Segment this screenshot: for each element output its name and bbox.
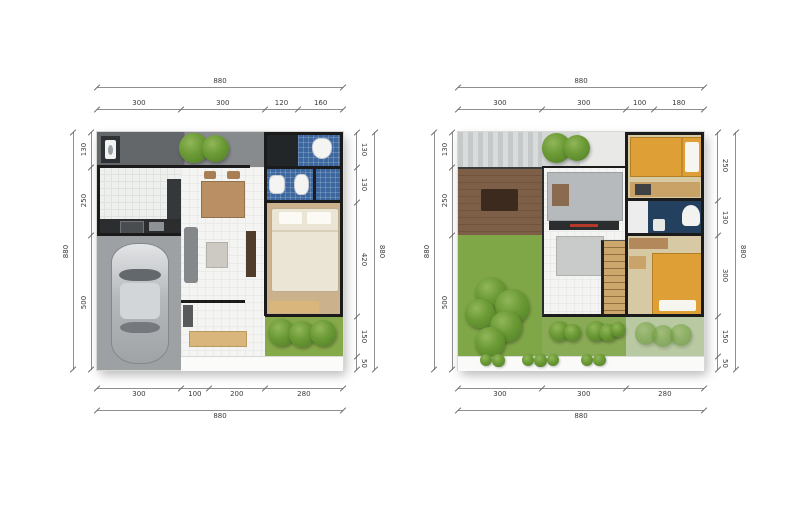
upper-hall xyxy=(626,200,648,235)
dim-segment: 120 xyxy=(265,96,299,110)
wall xyxy=(542,314,704,317)
dining-table xyxy=(201,181,245,218)
dim-segment: 300 xyxy=(97,96,181,110)
wall xyxy=(97,233,181,236)
ground-floor-plan: 880 300 300 120 160 880 130 250 500 130 … xyxy=(97,132,343,370)
dim-rail-left-total: 880 xyxy=(60,132,74,370)
bathroom-2 xyxy=(265,167,343,202)
dim-label: 250 xyxy=(81,194,88,207)
tv-cabinet xyxy=(246,231,256,277)
garage xyxy=(97,235,181,370)
dim-rail-bottom-segments: 300 300 280 xyxy=(458,388,704,402)
walkway xyxy=(181,356,343,371)
dim-segment: 160 xyxy=(298,96,343,110)
dim-segment: 150 xyxy=(717,316,731,357)
dim-segment: 300 xyxy=(181,96,265,110)
dim-rail-top-segments: 300 300 100 180 xyxy=(458,96,704,110)
side-cabinet xyxy=(629,256,646,269)
wall xyxy=(701,132,704,316)
bush-icon xyxy=(564,135,590,161)
dim-label: 250 xyxy=(442,194,449,207)
blanket-fold xyxy=(681,138,683,176)
stairs xyxy=(601,240,625,314)
wall xyxy=(97,165,250,168)
bush-icon xyxy=(202,135,229,162)
floorplan-canvas: 880 300 300 120 160 880 130 250 500 130 … xyxy=(0,0,804,505)
dim-label: 50 xyxy=(721,359,728,368)
wall xyxy=(265,314,343,317)
dim-segment: 880 xyxy=(421,132,435,370)
dim-label: 300 xyxy=(132,391,145,398)
bedroom-1 xyxy=(626,132,704,200)
bathroom xyxy=(648,200,704,235)
pillow xyxy=(685,142,699,172)
pillow xyxy=(279,212,303,223)
dim-label: 160 xyxy=(314,100,327,107)
dim-segment: 500 xyxy=(78,235,92,370)
wall xyxy=(542,166,626,168)
dim-segment: 50 xyxy=(717,356,731,370)
dim-label: 130 xyxy=(360,143,367,156)
dim-rail-right-segments: 250 130 300 150 50 xyxy=(717,132,731,370)
dim-label: 880 xyxy=(574,413,587,420)
toilet-icon xyxy=(312,138,332,159)
bush-icon xyxy=(564,324,581,341)
dim-rail-left-segments: 130 250 500 xyxy=(439,132,453,370)
dim-label: 130 xyxy=(360,178,367,191)
dim-label: 880 xyxy=(63,244,70,257)
dim-segment: 880 xyxy=(735,132,749,370)
tv-accent xyxy=(570,224,598,227)
dim-label: 300 xyxy=(577,100,590,107)
dim-label: 300 xyxy=(493,100,506,107)
dim-rail-right-total: 880 xyxy=(735,132,749,370)
dim-label: 300 xyxy=(721,269,728,282)
dim-segment: 300 xyxy=(717,235,731,316)
dim-label: 250 xyxy=(721,159,728,172)
dim-rail-bottom-total: 880 xyxy=(97,410,343,424)
bed xyxy=(652,253,703,315)
dim-segment: 300 xyxy=(97,388,181,402)
dim-segment: 200 xyxy=(209,388,265,402)
cabinet xyxy=(183,305,194,328)
dim-rail-left-segments: 130 250 500 xyxy=(78,132,92,370)
dim-label: 280 xyxy=(297,391,310,398)
dim-label: 300 xyxy=(493,391,506,398)
wall xyxy=(542,167,544,316)
dim-segment: 880 xyxy=(458,410,704,424)
dim-label: 420 xyxy=(360,252,367,265)
dim-segment: 300 xyxy=(458,388,542,402)
dim-label: 50 xyxy=(360,359,367,368)
washing-machine-icon xyxy=(101,136,119,163)
dim-segment: 250 xyxy=(439,167,453,235)
tv-console xyxy=(549,221,619,230)
car-roof xyxy=(120,283,160,319)
dim-segment: 100 xyxy=(181,388,209,402)
wall-divider xyxy=(313,167,316,202)
wall xyxy=(340,132,343,316)
dim-rail-bottom-segments: 300 100 200 280 xyxy=(97,388,343,402)
bedroom xyxy=(265,202,343,316)
dim-segment: 300 xyxy=(458,96,542,110)
dim-segment: 130 xyxy=(356,167,370,202)
family-room xyxy=(542,167,626,316)
dim-label: 300 xyxy=(216,100,229,107)
wall xyxy=(626,132,704,135)
dim-label: 500 xyxy=(81,296,88,309)
dim-label: 130 xyxy=(721,211,728,224)
dim-segment: 280 xyxy=(626,388,704,402)
cabinet xyxy=(635,184,650,194)
car xyxy=(111,243,168,364)
dim-rail-left-total: 880 xyxy=(421,132,435,370)
dim-segment: 130 xyxy=(717,200,731,235)
dim-rail-right-segments: 130 130 420 150 50 xyxy=(356,132,370,370)
bush-icon xyxy=(534,354,546,366)
bush-icon xyxy=(547,354,559,366)
dim-segment: 300 xyxy=(542,96,626,110)
dim-label: 880 xyxy=(424,244,431,257)
desk xyxy=(629,238,668,249)
wall xyxy=(626,233,704,236)
closet-block xyxy=(265,132,299,167)
dim-label: 130 xyxy=(81,143,88,156)
sink-icon xyxy=(269,175,285,195)
kitchen-counter-side xyxy=(167,179,180,218)
dim-segment: 130 xyxy=(356,132,370,167)
dim-rail-top-total: 880 xyxy=(97,74,343,88)
dim-segment: 280 xyxy=(265,388,343,402)
bench xyxy=(189,331,246,347)
bathroom-1 xyxy=(298,132,343,167)
bench xyxy=(269,301,319,312)
dim-segment: 250 xyxy=(78,167,92,235)
dim-label: 300 xyxy=(577,391,590,398)
dim-segment: 880 xyxy=(97,410,343,424)
dim-label: 880 xyxy=(574,78,587,85)
dim-rail-top-total: 880 xyxy=(458,74,704,88)
upper-floor-plan: 880 300 300 100 180 880 130 250 500 250 … xyxy=(458,132,704,370)
upper-floor-plot xyxy=(458,132,704,370)
bench xyxy=(630,182,700,197)
dim-label: 880 xyxy=(213,78,226,85)
sofa xyxy=(556,236,604,277)
dim-label: 150 xyxy=(721,330,728,343)
bush-icon xyxy=(310,320,336,346)
dim-segment: 130 xyxy=(78,132,92,167)
sofa xyxy=(184,227,198,284)
wall xyxy=(265,200,343,203)
coffee-table xyxy=(206,242,228,268)
dim-segment: 300 xyxy=(542,388,626,402)
dim-label: 150 xyxy=(360,330,367,343)
dim-label: 100 xyxy=(188,391,201,398)
pillow xyxy=(659,300,696,311)
dim-rail-bottom-total: 880 xyxy=(458,410,704,424)
wood-table xyxy=(552,184,569,206)
dim-segment: 50 xyxy=(356,356,370,370)
dim-segment: 880 xyxy=(97,74,343,88)
wall xyxy=(626,198,704,201)
dim-segment: 880 xyxy=(374,132,388,370)
dim-segment: 180 xyxy=(654,96,704,110)
sink-icon xyxy=(653,219,665,231)
bush-icon xyxy=(475,327,505,357)
dim-label: 200 xyxy=(230,391,243,398)
bedroom-2 xyxy=(626,235,704,316)
dim-segment: 250 xyxy=(717,132,731,200)
dim-rail-right-total: 880 xyxy=(374,132,388,370)
bed xyxy=(271,208,339,292)
dim-label: 130 xyxy=(442,143,449,156)
blanket-fold xyxy=(272,230,338,232)
dining-living-room xyxy=(181,167,265,302)
wall xyxy=(625,132,628,316)
dim-label: 880 xyxy=(378,244,385,257)
dim-segment: 880 xyxy=(60,132,74,370)
dim-rail-top-segments: 300 300 120 160 xyxy=(97,96,343,110)
wall xyxy=(264,132,267,316)
car-rear-window xyxy=(120,322,160,333)
toilet-icon xyxy=(294,174,309,195)
pillow xyxy=(307,212,331,223)
dim-segment: 500 xyxy=(439,235,453,370)
dim-segment: 150 xyxy=(356,316,370,357)
dim-label: 180 xyxy=(672,100,685,107)
car-windshield xyxy=(119,269,161,281)
bush-icon xyxy=(492,354,504,366)
wood-deck xyxy=(458,167,542,237)
dim-segment: 880 xyxy=(458,74,704,88)
chair xyxy=(227,171,240,179)
dim-segment: 130 xyxy=(439,132,453,167)
dim-label: 280 xyxy=(658,391,671,398)
wall xyxy=(265,132,343,135)
dim-label: 120 xyxy=(275,100,288,107)
hallway xyxy=(181,302,265,356)
wall xyxy=(97,167,100,235)
kitchen xyxy=(97,167,181,235)
dim-label: 500 xyxy=(442,296,449,309)
wall xyxy=(265,166,343,169)
ground-floor-plot xyxy=(97,132,343,370)
deck-table xyxy=(481,189,518,211)
bed xyxy=(630,137,702,177)
dim-segment: 100 xyxy=(626,96,654,110)
dim-label: 300 xyxy=(132,100,145,107)
dim-segment: 420 xyxy=(356,202,370,316)
roof-strip xyxy=(458,132,542,167)
dim-label: 100 xyxy=(633,100,646,107)
dim-label: 880 xyxy=(213,413,226,420)
dim-label: 880 xyxy=(739,244,746,257)
chair xyxy=(204,171,217,179)
kitchen-sink-icon xyxy=(149,222,164,232)
bush-icon xyxy=(593,354,605,366)
wall xyxy=(181,300,245,303)
toilet-icon xyxy=(682,205,700,226)
bush-icon xyxy=(670,324,692,346)
